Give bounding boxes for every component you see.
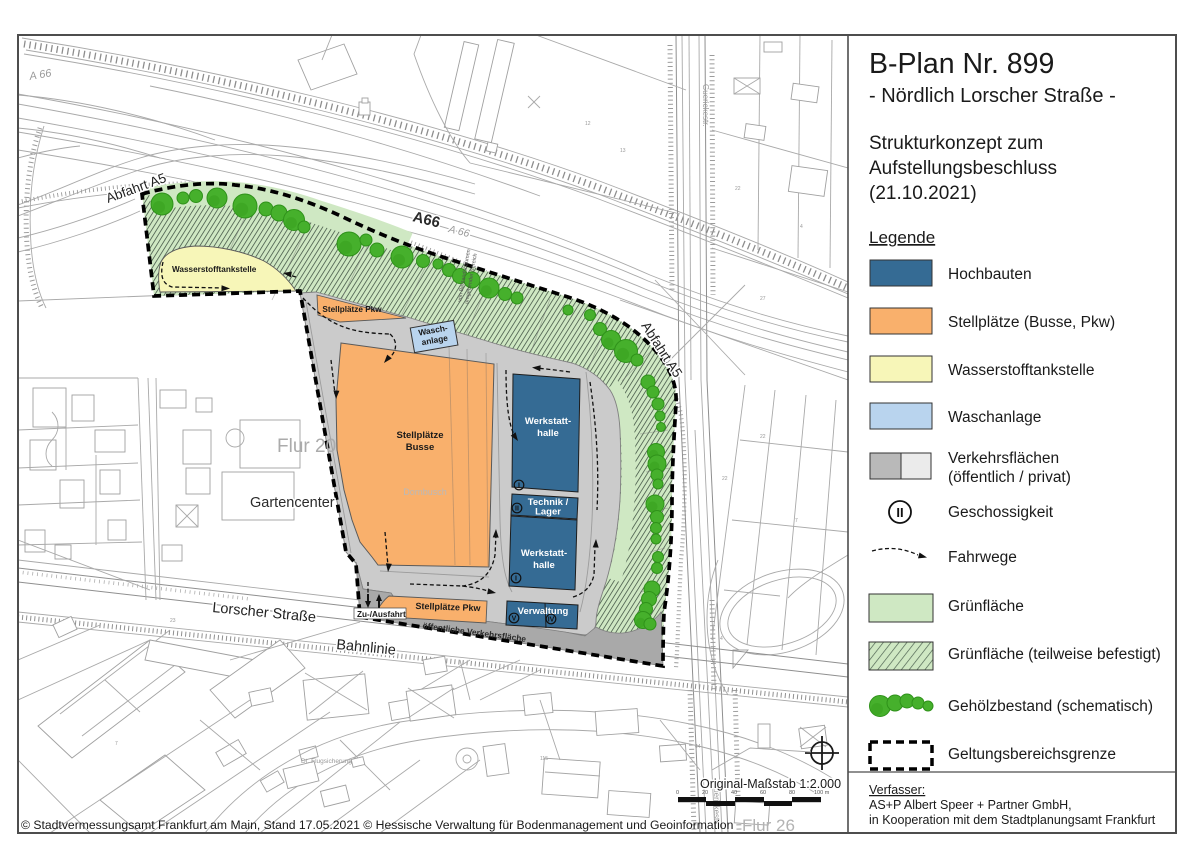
svg-text:I: I <box>515 576 517 583</box>
svg-text:60: 60 <box>760 790 766 796</box>
svg-text:22: 22 <box>760 434 766 440</box>
svg-text:Verwaltung: Verwaltung <box>518 606 569 617</box>
svg-text:II: II <box>515 506 519 513</box>
svg-text:Verfasser:: Verfasser: <box>869 783 925 797</box>
svg-text:40: 40 <box>731 790 737 796</box>
svg-text:4: 4 <box>800 224 803 230</box>
svg-text:22: 22 <box>735 186 741 192</box>
svg-text:B-Plan Nr. 899: B-Plan Nr. 899 <box>869 48 1054 80</box>
svg-text:Grünfläche (teilweise befestig: Grünfläche (teilweise befestigt) <box>948 646 1161 663</box>
svg-text:- Nördlich Lorscher Straße -: - Nördlich Lorscher Straße - <box>869 85 1116 107</box>
svg-text:AS+P Albert Speer + Partner Gm: AS+P Albert Speer + Partner GmbH, <box>869 798 1072 812</box>
svg-text:Original-Maßstab 1:2.000: Original-Maßstab 1:2.000 <box>700 777 841 791</box>
svg-text:44: 44 <box>695 744 701 750</box>
svg-text:Busse: Busse <box>406 442 435 453</box>
svg-text:0: 0 <box>676 790 679 796</box>
svg-text:Dornbusch: Dornbusch <box>403 487 447 497</box>
svg-text:Stellplätze (Busse, Pkw): Stellplätze (Busse, Pkw) <box>948 314 1115 331</box>
svg-text:II: II <box>896 505 903 520</box>
svg-text:Legende: Legende <box>869 228 935 247</box>
svg-text:20: 20 <box>702 790 708 796</box>
svg-text:Wasserstofftankstelle: Wasserstofftankstelle <box>948 362 1094 379</box>
svg-text:13: 13 <box>620 148 626 154</box>
svg-text:Zu-/Ausfahrt: Zu-/Ausfahrt <box>357 610 406 619</box>
svg-text:4: 4 <box>720 636 723 642</box>
svg-text:IV: IV <box>548 617 555 624</box>
svg-text:Waschanlage: Waschanlage <box>948 409 1041 426</box>
svg-text:Verkehrsflächen: Verkehrsflächen <box>948 450 1059 467</box>
svg-text:Wasserstofftankstelle: Wasserstofftankstelle <box>172 265 257 274</box>
svg-text:Gartencenter: Gartencenter <box>250 495 335 511</box>
svg-text:Flur 20: Flur 20 <box>277 436 336 457</box>
svg-text:© Stadtvermessungsamt Frankfur: © Stadtvermessungsamt Frankfurt am Main,… <box>21 818 733 832</box>
svg-text:Werkstatt-: Werkstatt- <box>521 548 567 559</box>
svg-text:Fahrwege: Fahrwege <box>948 549 1017 566</box>
svg-text:Stellplätze: Stellplätze <box>397 430 444 441</box>
svg-text:(21.10.2021): (21.10.2021) <box>869 183 977 204</box>
svg-text:halle: halle <box>533 560 555 571</box>
svg-text:Strukturkonzept zum: Strukturkonzept zum <box>869 133 1043 154</box>
svg-text:12: 12 <box>585 121 591 127</box>
svg-text:80: 80 <box>789 790 795 796</box>
svg-text:Gehölzbestand (schematisch): Gehölzbestand (schematisch) <box>948 698 1153 715</box>
svg-text:Geltungsbereichsgrenze: Geltungsbereichsgrenze <box>948 746 1116 763</box>
svg-text:Dt. Flugsicherung: Dt. Flugsicherung <box>301 758 352 765</box>
svg-text:23: 23 <box>170 618 176 624</box>
svg-text:115: 115 <box>540 756 548 762</box>
svg-text:7: 7 <box>115 741 118 747</box>
svg-text:100 m: 100 m <box>814 790 830 796</box>
svg-text:Stellplätze Pkw: Stellplätze Pkw <box>322 305 382 314</box>
svg-text:Hochbauten: Hochbauten <box>948 266 1032 283</box>
svg-text:27: 27 <box>760 296 766 302</box>
svg-text:Aufstellungsbeschluss: Aufstellungsbeschluss <box>869 158 1057 179</box>
svg-text:Grünfläche: Grünfläche <box>948 598 1024 615</box>
svg-text:22: 22 <box>722 476 728 482</box>
svg-text:in Kooperation mit dem Stadtpl: in Kooperation mit dem Stadtplanungsamt … <box>869 813 1156 827</box>
svg-text:(öffentlich / privat): (öffentlich / privat) <box>948 469 1071 486</box>
svg-text:Werkstatt-: Werkstatt- <box>525 416 571 427</box>
svg-text:Geschossigkeit: Geschossigkeit <box>948 504 1054 521</box>
svg-text:Lager: Lager <box>535 507 561 518</box>
svg-text:I: I <box>518 483 520 490</box>
svg-text:V: V <box>512 616 517 623</box>
svg-text:halle: halle <box>537 428 559 439</box>
svg-text:Guerickestr.: Guerickestr. <box>701 84 710 127</box>
svg-text:7: 7 <box>795 518 798 524</box>
